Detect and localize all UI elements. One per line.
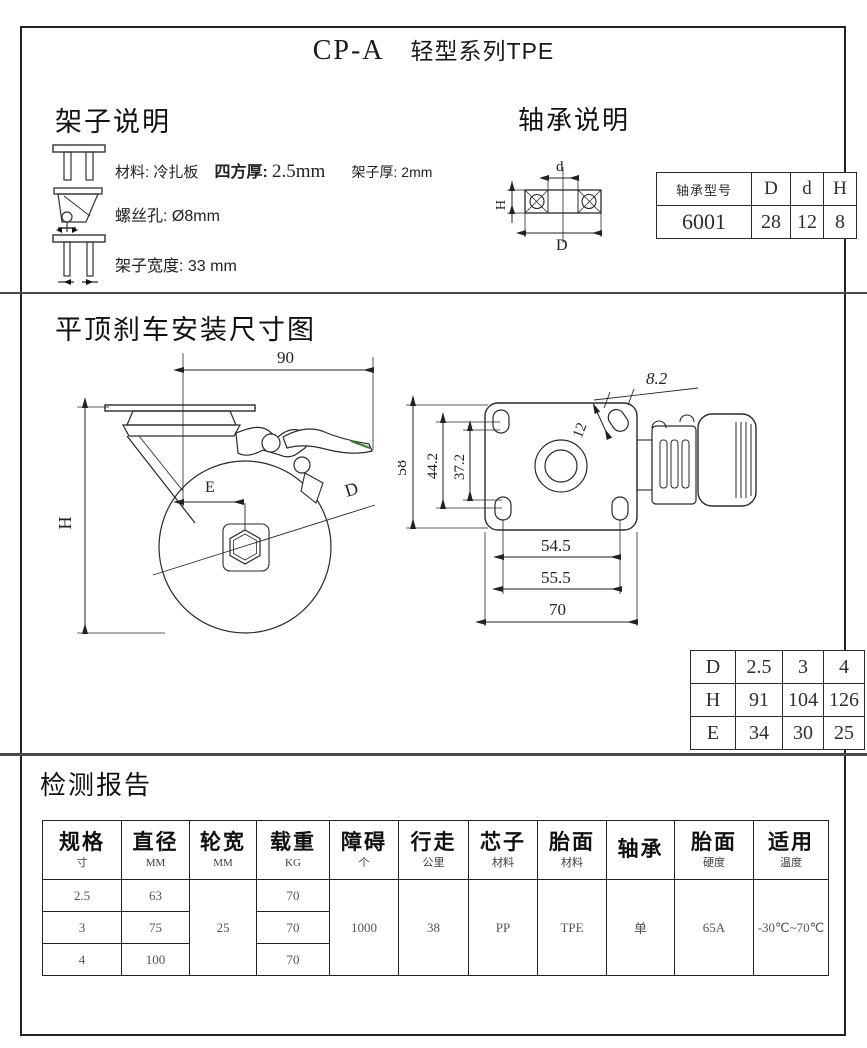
screw-hole-row: 螺丝孔: Ø8mm [115,202,220,226]
dhe-d-2: 3 [783,651,824,684]
square-thickness-label: 四方厚: [215,164,268,181]
col-header-wheel-width: 轮宽MM [190,821,257,880]
load-value: 70 [257,912,330,944]
spec-sheet-page: { "page": { "code": "CP-A", "series": "轻… [0,0,867,1048]
dhe-row-h: H 91 104 126 [691,684,865,717]
side-dim-H: H [55,517,75,530]
bearing-H-value: 8 [824,206,857,239]
bearing-spec-table: 轴承型号 D d H 6001 28 12 8 [656,172,857,239]
col-header-hardness: 胎面硬度 [675,821,754,880]
top-dim-12: 12 [570,421,590,441]
bearing-model-value: 6001 [657,206,752,239]
top-dim-8-2: 8.2 [646,369,668,388]
dhe-e-2: 30 [783,717,824,750]
side-dim-90: 90 [277,348,294,367]
bearing-D-value: 28 [752,206,791,239]
spec-value: 2.5 [43,880,122,912]
dhe-label-D: D [691,651,736,684]
dhe-e-1: 34 [736,717,783,750]
col-header-obstacles: 障碍个 [330,821,399,880]
frame-fork-icon [50,232,108,290]
diameter-value: 63 [122,880,190,912]
col-header-diameter: 直径MM [122,821,190,880]
tread-material-value: TPE [538,880,607,976]
square-thickness-value: 2.5mm [272,161,325,182]
dhe-d-1: 2.5 [736,651,783,684]
report-header-row: 规格寸 直径MM 轮宽MM 载重KG 障碍个 行走公里 芯子材料 胎面材料 轴承… [43,821,829,880]
bearing-dim-H: H [495,200,509,210]
bearing-col-D: D [752,173,791,206]
diameter-value: 100 [122,944,190,976]
wheel-width-value: 25 [190,880,257,976]
frame-section-heading: 架子说明 [55,100,171,139]
core-material-value: PP [469,880,538,976]
frame-thickness-value: 架子厚: 2mm [352,164,433,180]
top-dim-37-2: 37.2 [452,454,468,480]
load-value: 70 [257,880,330,912]
caster-top-view-drawing: 58 44.2 37.2 8.2 12 54.5 55.5 70 [398,356,768,646]
drawing-section-heading: 平顶刹车安装尺寸图 [55,308,316,347]
frame-swivel-icon [50,186,108,238]
dhe-d-3: 4 [824,651,865,684]
diameter-value: 75 [122,912,190,944]
model-code: CP-A [313,35,385,66]
dhe-h-1: 91 [736,684,783,717]
bearing-dim-D: D [556,237,568,254]
dhe-h-2: 104 [783,684,824,717]
page-title: CP-A轻型系列TPE [0,32,867,67]
frame-top-plate-icon [50,140,108,188]
material-label: 材料: 冷扎板 [115,164,198,181]
dhe-e-3: 25 [824,717,865,750]
side-dim-D: D [342,478,360,501]
bearing-col-H: H [824,173,857,206]
bearing-section-heading: 轴承说明 [518,100,630,137]
side-dim-E: E [205,479,215,496]
bearing-d-value: 12 [791,206,824,239]
dhe-label-H: H [691,684,736,717]
section-divider-top [0,292,867,294]
top-dim-54-5: 54.5 [541,536,571,555]
col-header-temperature: 适用温度 [754,821,829,880]
col-header-distance: 行走公里 [399,821,469,880]
report-row-2-5inch: 2.5 63 25 70 1000 38 PP TPE 单 65A -30℃~7… [43,880,829,912]
bearing-type-value: 单 [607,880,675,976]
spec-value: 3 [43,912,122,944]
report-section-heading: 检测报告 [40,765,152,802]
obstacles-value: 1000 [330,880,399,976]
tread-hardness-value: 65A [675,880,754,976]
dhe-size-table: D 2.5 3 4 H 91 104 126 E 34 30 25 [690,650,865,750]
dhe-h-3: 126 [824,684,865,717]
top-dim-70: 70 [549,600,566,619]
dhe-row-d: D 2.5 3 4 [691,651,865,684]
dhe-label-E: E [691,717,736,750]
bearing-model-header: 轴承型号 [657,173,752,206]
bearing-col-d: d [791,173,824,206]
dhe-row-e: E 34 30 25 [691,717,865,750]
caster-side-view-drawing: 90 E D H [55,345,405,650]
top-dim-55-5: 55.5 [541,568,571,587]
distance-value: 38 [399,880,469,976]
temperature-value: -30℃~70℃ [754,880,829,976]
col-header-core: 芯子材料 [469,821,538,880]
section-divider-bottom [0,753,867,756]
inspection-report-table: 规格寸 直径MM 轮宽MM 载重KG 障碍个 行走公里 芯子材料 胎面材料 轴承… [42,820,829,976]
col-header-load: 载重KG [257,821,330,880]
load-value: 70 [257,944,330,976]
bearing-dim-d: d [556,159,564,175]
col-header-bearing: 轴承 [607,821,675,880]
frame-width-row: 架子宽度: 33 mm [115,252,237,276]
bearing-diagram: d D H [495,155,645,255]
frame-material-row: 材料: 冷扎板 四方厚: 2.5mm 架子厚: 2mm [115,158,432,183]
col-header-spec: 规格寸 [43,821,122,880]
top-dim-58: 58 [398,460,410,476]
series-name: 轻型系列TPE [411,38,555,64]
spec-value: 4 [43,944,122,976]
top-dim-44-2: 44.2 [425,453,441,479]
col-header-tread: 胎面材料 [538,821,607,880]
